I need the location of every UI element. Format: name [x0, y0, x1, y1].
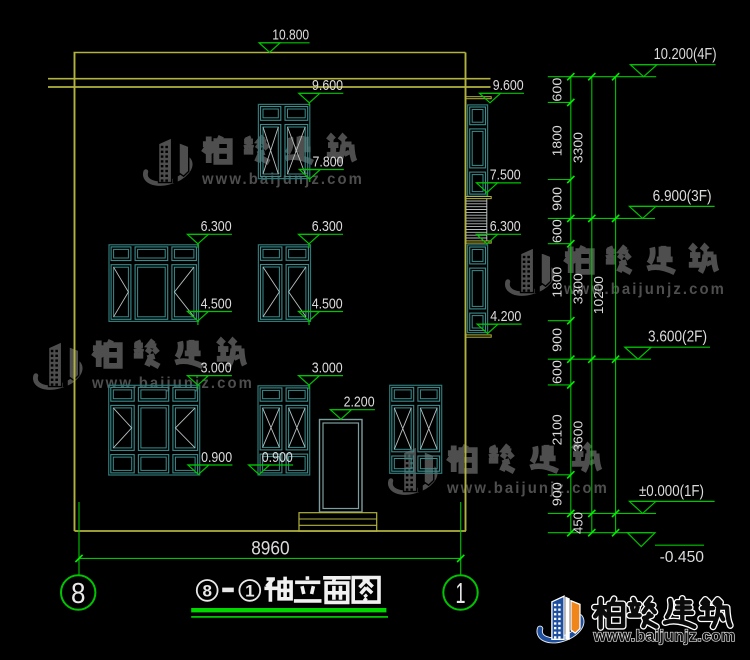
svg-text:900: 900 [549, 187, 564, 211]
svg-text:4.500: 4.500 [201, 296, 232, 312]
svg-text:1800: 1800 [549, 125, 564, 156]
svg-text:900: 900 [549, 482, 564, 506]
svg-text:3600: 3600 [570, 421, 585, 452]
svg-text:900: 900 [549, 328, 564, 352]
svg-text:1: 1 [245, 582, 254, 601]
svg-text:8960: 8960 [251, 539, 289, 560]
svg-text:-0.450: -0.450 [660, 549, 705, 566]
svg-text:600: 600 [549, 219, 564, 243]
svg-text:4.200: 4.200 [490, 309, 521, 325]
svg-text:6.300: 6.300 [201, 219, 232, 235]
svg-text:1800: 1800 [549, 267, 564, 298]
svg-text:0.900: 0.900 [262, 450, 293, 466]
svg-text:www.baijunjz.com: www.baijunjz.com [592, 628, 735, 645]
svg-text:9.600: 9.600 [312, 78, 343, 94]
svg-text:3.600(2F): 3.600(2F) [648, 329, 707, 346]
svg-text:6.300: 6.300 [490, 219, 521, 235]
svg-text:600: 600 [549, 360, 564, 384]
svg-text:6.900(3F): 6.900(3F) [653, 188, 712, 205]
svg-text:7.500: 7.500 [490, 168, 521, 184]
svg-text:www.baijunjz.com: www.baijunjz.com [201, 171, 364, 188]
svg-text:1: 1 [456, 578, 466, 610]
svg-text:3300: 3300 [570, 273, 585, 304]
svg-text:2.200: 2.200 [344, 395, 375, 411]
svg-text:0.900: 0.900 [201, 450, 232, 466]
svg-text:±0.000(1F): ±0.000(1F) [639, 483, 704, 500]
svg-text:8: 8 [202, 582, 211, 601]
svg-text:9.600: 9.600 [493, 78, 524, 94]
svg-text:www.baijunjz.com: www.baijunjz.com [446, 480, 609, 497]
svg-text:10200: 10200 [591, 276, 606, 314]
svg-text:450: 450 [570, 512, 585, 534]
svg-text:10.800: 10.800 [272, 28, 309, 44]
svg-text:3.000: 3.000 [201, 360, 232, 376]
svg-text:4.500: 4.500 [312, 296, 343, 312]
svg-text:600: 600 [549, 78, 564, 102]
svg-text:10.200(4F): 10.200(4F) [654, 46, 717, 63]
svg-text:3.000: 3.000 [312, 360, 343, 376]
svg-text:www.baijunjz.com: www.baijunjz.com [563, 281, 726, 298]
svg-text:6.300: 6.300 [312, 219, 343, 235]
svg-text:8: 8 [71, 578, 86, 610]
svg-text:7.800: 7.800 [313, 154, 344, 170]
svg-text:3300: 3300 [570, 132, 585, 163]
svg-text:2100: 2100 [549, 414, 564, 445]
